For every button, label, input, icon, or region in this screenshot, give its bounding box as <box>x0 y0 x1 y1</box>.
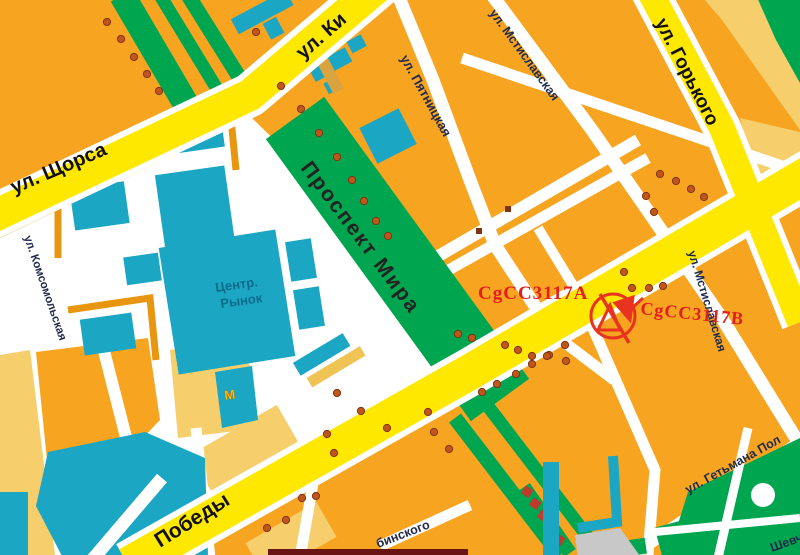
poi-dot <box>384 232 391 239</box>
poi-dot <box>315 129 322 136</box>
poi-dot <box>543 352 550 359</box>
poi-dot <box>312 492 319 499</box>
poi-square <box>505 206 511 212</box>
poi-dot <box>620 268 627 275</box>
poi-dot <box>130 53 137 60</box>
poi-dot <box>656 170 663 177</box>
poi-dot <box>512 370 519 377</box>
poi-dot <box>282 516 289 523</box>
poi-dot <box>263 524 270 531</box>
poi-dot <box>277 82 284 89</box>
poi-dot <box>117 35 124 42</box>
map-edge-artifact <box>268 549 468 555</box>
poi-dot <box>445 445 452 452</box>
poi-dot <box>628 284 635 291</box>
poi-dot <box>659 282 666 289</box>
poi-dot <box>478 388 485 395</box>
marker-site-a[interactable]: CgCC3117A <box>478 283 588 304</box>
poi-dot <box>360 197 367 204</box>
poi-dot <box>493 380 500 387</box>
poi-dot <box>645 284 652 291</box>
poi-dot <box>700 193 707 200</box>
city-map[interactable]: ул. Ки ул. Щорса ул. Горького Победы Про… <box>0 0 800 555</box>
poi-dot <box>298 494 305 501</box>
poi-dot <box>372 217 379 224</box>
poi-dot <box>330 449 337 456</box>
poi-dot <box>454 330 461 337</box>
metro-icon: М <box>223 387 236 403</box>
poi-dot <box>562 357 569 364</box>
poi-dot <box>528 360 535 367</box>
poi-dot <box>357 407 364 414</box>
poi-square <box>476 228 482 234</box>
poi-dot <box>323 430 330 437</box>
poi-dot <box>333 389 340 396</box>
poi-dot <box>143 70 150 77</box>
poi-dot <box>103 18 110 25</box>
poi-dot <box>514 346 521 353</box>
poi-dot <box>348 176 355 183</box>
poi-dot <box>333 153 340 160</box>
poi-dot <box>561 341 568 348</box>
poi-dot <box>297 105 304 112</box>
poi-dot <box>501 341 508 348</box>
poi-dot <box>528 352 535 359</box>
poi-dot <box>687 185 694 192</box>
poi-dot <box>383 424 390 431</box>
poi-dot <box>642 192 649 199</box>
poi-dot <box>252 28 259 35</box>
poi-dot <box>430 428 437 435</box>
poi-dot <box>672 177 679 184</box>
poi-dot <box>468 334 475 341</box>
metro-building <box>215 366 258 428</box>
poi-dot <box>424 408 431 415</box>
poi-dot <box>155 87 162 94</box>
poi-dot <box>650 208 657 215</box>
